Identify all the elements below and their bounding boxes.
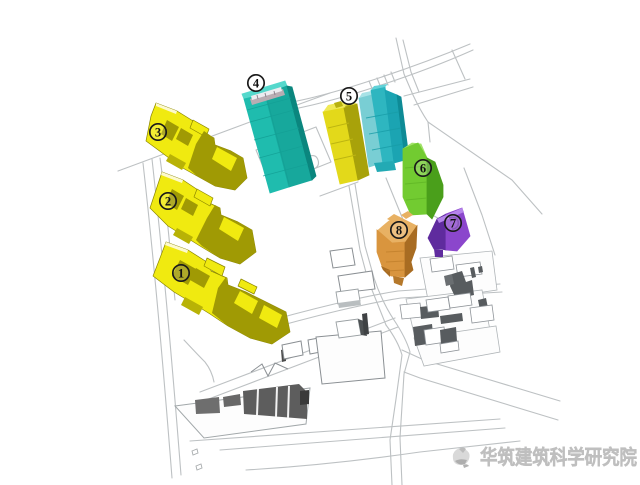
- svg-text:7: 7: [450, 216, 456, 230]
- svg-text:1: 1: [178, 266, 184, 280]
- svg-text:华筑建筑科学研究院: 华筑建筑科学研究院: [480, 445, 637, 469]
- svg-text:4: 4: [253, 76, 260, 90]
- svg-text:2: 2: [165, 194, 171, 208]
- svg-text:8: 8: [396, 223, 402, 237]
- svg-text:5: 5: [346, 89, 352, 103]
- svg-text:6: 6: [420, 161, 426, 175]
- svg-text:3: 3: [155, 125, 161, 139]
